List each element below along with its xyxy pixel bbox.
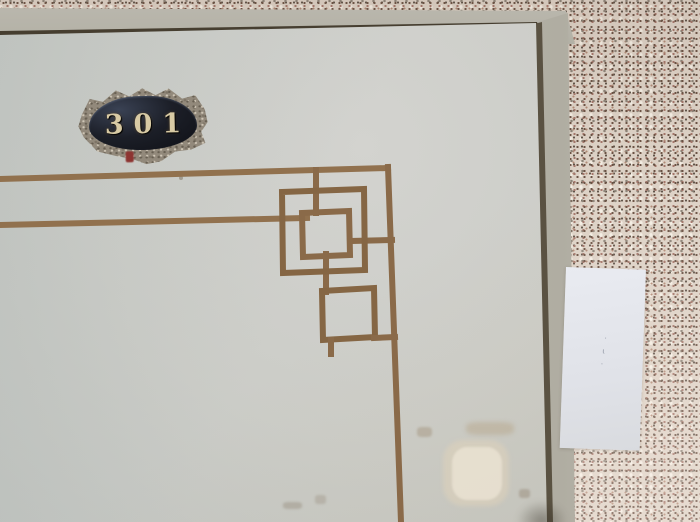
paper-mark: · — [600, 358, 604, 371]
room-number-plate: 301 — [76, 84, 210, 167]
room-number-text: 301 — [88, 97, 197, 151]
scuff-mark — [315, 495, 326, 504]
plate-red-accent — [126, 151, 134, 162]
paper-mark: · — [603, 332, 607, 345]
door-photo: 301 · ι · — [0, 0, 700, 522]
smudge-stain-small — [417, 427, 432, 437]
smudge-stain — [466, 422, 514, 435]
paper-slip: · ι · — [560, 267, 646, 451]
paper-mark: ι — [602, 345, 606, 358]
tape-residue-stain-inner — [452, 447, 502, 500]
scuff-mark — [283, 502, 302, 509]
paper-handwritten-marks: · ι · — [589, 331, 616, 383]
scuff-mark — [519, 489, 530, 498]
frame-bottom-shadow — [516, 500, 568, 522]
scuff-dot — [179, 176, 183, 180]
